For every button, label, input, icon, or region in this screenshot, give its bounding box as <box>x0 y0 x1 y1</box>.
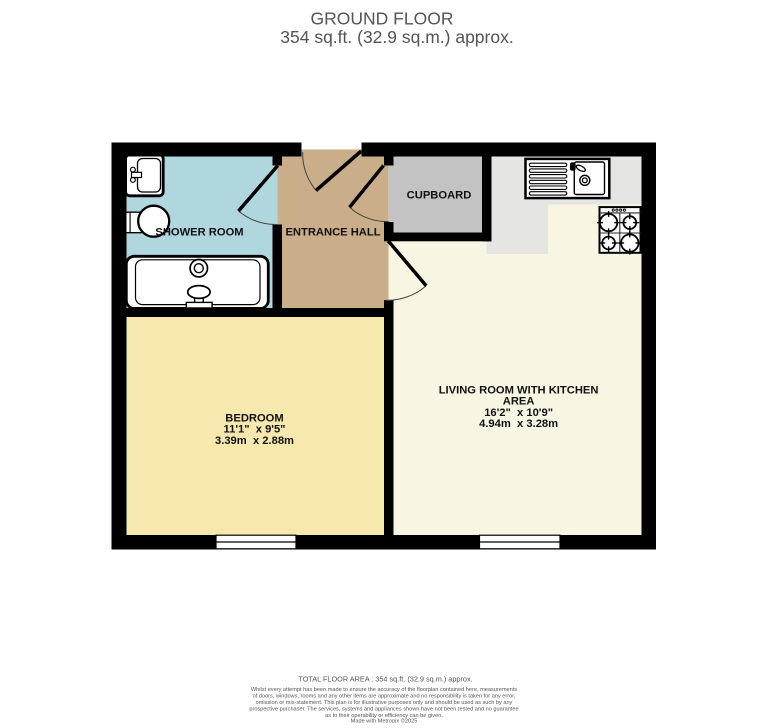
svg-text:SHOWER ROOM: SHOWER ROOM <box>155 227 243 239</box>
svg-text:BEDROOM: BEDROOM <box>225 412 283 424</box>
svg-text:of doors, windows, rooms and a: of doors, windows, rooms and any other i… <box>253 693 516 699</box>
svg-text:4.94m x 3.28m: 4.94m x 3.28m <box>479 418 558 430</box>
svg-text:354 sq.ft. (32.9 sq.m.) approx: 354 sq.ft. (32.9 sq.m.) approx. <box>280 27 513 47</box>
svg-text:11'1" x 9'5": 11'1" x 9'5" <box>224 424 286 436</box>
svg-text:Made with Metropix ©2025: Made with Metropix ©2025 <box>351 717 418 723</box>
svg-text:ENTRANCE HALL: ENTRANCE HALL <box>285 227 380 239</box>
svg-text:GROUND FLOOR: GROUND FLOOR <box>311 9 454 29</box>
svg-text:TOTAL FLOOR AREA : 354 sq.ft.: TOTAL FLOOR AREA : 354 sq.ft. (32.9 sq.m… <box>298 675 472 684</box>
svg-text:prospective purchaser. The ser: prospective purchaser. The services, sys… <box>249 707 518 713</box>
svg-text:omission or mis-statement. Thi: omission or mis-statement. This plan is … <box>256 700 513 706</box>
svg-text:3.39m x 2.88m: 3.39m x 2.88m <box>215 435 294 447</box>
svg-text:Whilst every attempt has been: Whilst every attempt has been made to en… <box>251 687 517 693</box>
svg-text:CUPBOARD: CUPBOARD <box>407 190 472 202</box>
svg-text:AREA: AREA <box>503 395 535 407</box>
